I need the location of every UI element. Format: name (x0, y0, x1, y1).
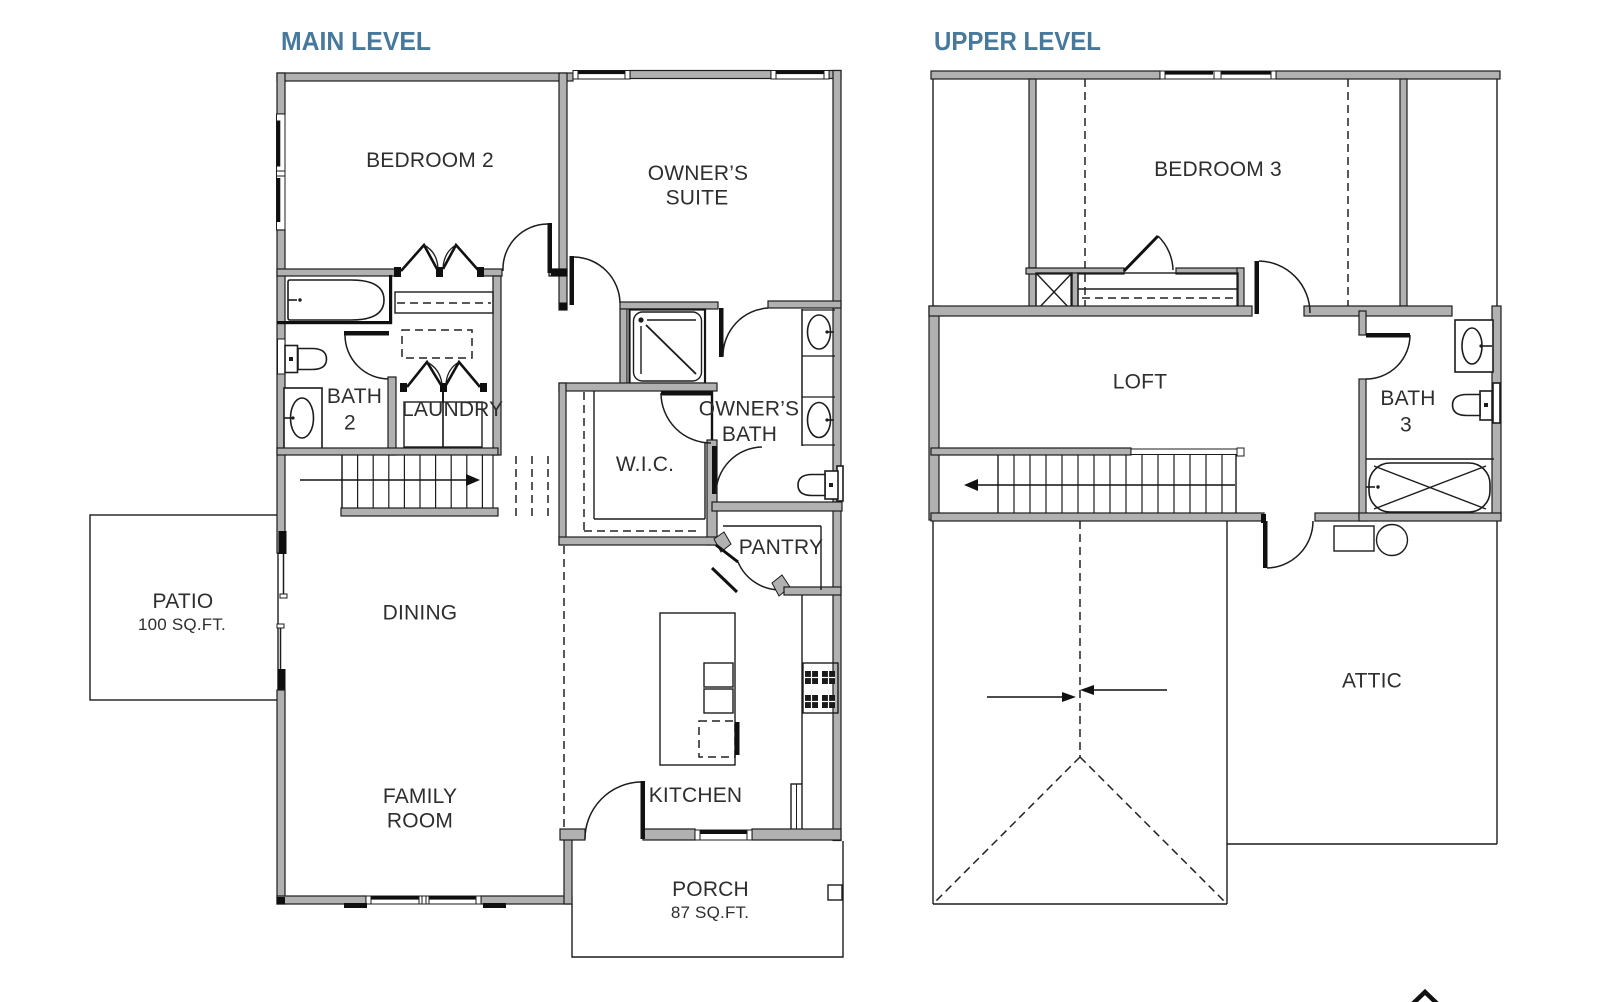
svg-text:PORCH: PORCH (672, 878, 749, 901)
svg-text:OWNER’S: OWNER’S (648, 162, 749, 185)
svg-text:MAIN LEVEL: MAIN LEVEL (281, 26, 431, 56)
svg-text:KITCHEN: KITCHEN (649, 784, 743, 807)
svg-text:LAUNDRY: LAUNDRY (402, 398, 503, 421)
svg-text:UPPER LEVEL: UPPER LEVEL (934, 26, 1101, 56)
svg-text:BEDROOM 3: BEDROOM 3 (1154, 158, 1282, 181)
svg-text:PATIO: PATIO (153, 590, 214, 613)
svg-text:BATH: BATH (327, 385, 382, 408)
svg-text:ATTIC: ATTIC (1342, 670, 1402, 693)
svg-text:PANTRY: PANTRY (739, 536, 823, 559)
svg-text:W.I.C.: W.I.C. (616, 453, 674, 476)
svg-text:FAMILY: FAMILY (383, 785, 457, 808)
svg-text:OWNER’S: OWNER’S (699, 398, 800, 421)
svg-text:SUITE: SUITE (666, 187, 729, 210)
svg-text:3: 3 (1400, 414, 1412, 437)
svg-text:BATH: BATH (722, 423, 777, 446)
svg-text:BATH: BATH (1380, 387, 1435, 410)
svg-text:BEDROOM 2: BEDROOM 2 (366, 149, 494, 172)
svg-text:DINING: DINING (383, 602, 458, 625)
svg-text:87 SQ.FT.: 87 SQ.FT. (671, 903, 749, 922)
svg-text:100 SQ.FT.: 100 SQ.FT. (138, 615, 226, 634)
svg-text:ROOM: ROOM (387, 810, 453, 833)
svg-text:LOFT: LOFT (1113, 371, 1167, 394)
svg-text:2: 2 (344, 412, 356, 435)
